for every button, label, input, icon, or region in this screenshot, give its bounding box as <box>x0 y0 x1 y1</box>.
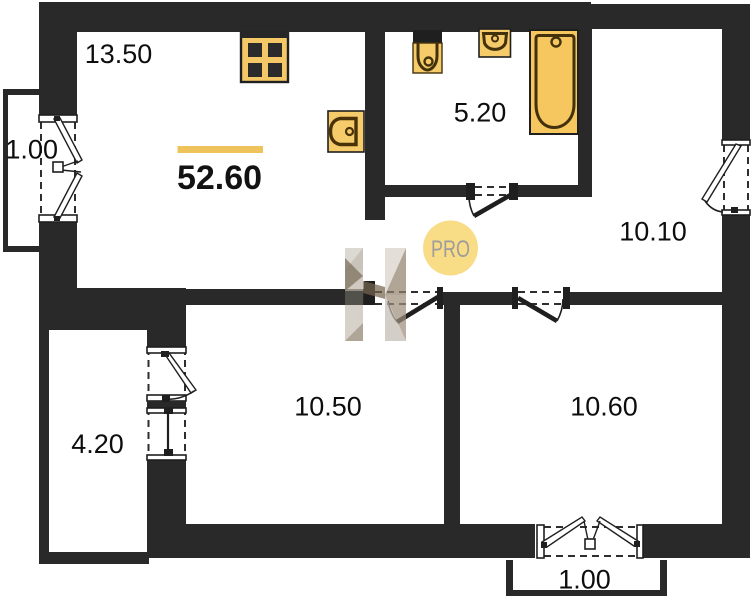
svg-text:10.50: 10.50 <box>294 392 362 422</box>
svg-text:10.60: 10.60 <box>570 392 638 422</box>
svg-text:PRO: PRO <box>431 236 470 263</box>
svg-text:52.60: 52.60 <box>177 159 262 197</box>
svg-text:4.20: 4.20 <box>71 429 124 459</box>
svg-text:10.10: 10.10 <box>619 217 687 247</box>
svg-text:13.50: 13.50 <box>85 39 153 69</box>
svg-text:1.00: 1.00 <box>558 565 611 595</box>
svg-text:5.20: 5.20 <box>454 98 507 128</box>
svg-text:1.00: 1.00 <box>5 135 58 165</box>
